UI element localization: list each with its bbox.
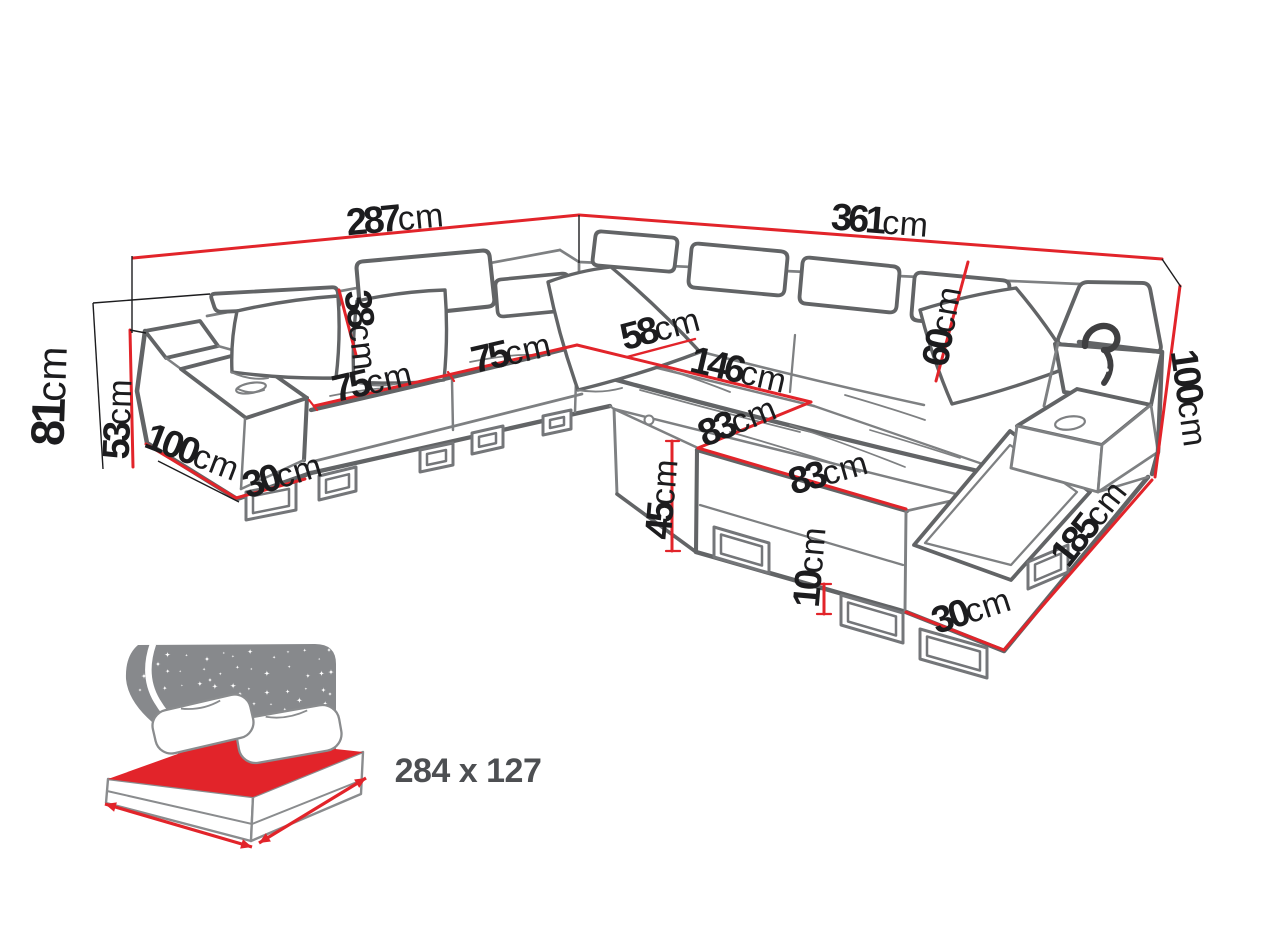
svg-text:cm: cm [924,283,969,335]
svg-text:53: 53 [96,421,139,460]
svg-text:cm: cm [28,345,76,402]
svg-text:cm: cm [396,196,446,238]
svg-text:100: 100 [1162,347,1211,407]
svg-text:361: 361 [830,196,888,242]
svg-text:cm: cm [792,525,834,574]
svg-text:cm: cm [644,457,686,506]
svg-text:287: 287 [344,197,402,244]
svg-text:cm: cm [100,378,140,426]
svg-text:cm: cm [881,203,930,245]
svg-text:cm: cm [1170,398,1214,449]
svg-text:284 x 127: 284 x 127 [395,752,542,790]
svg-text:81: 81 [20,398,75,447]
